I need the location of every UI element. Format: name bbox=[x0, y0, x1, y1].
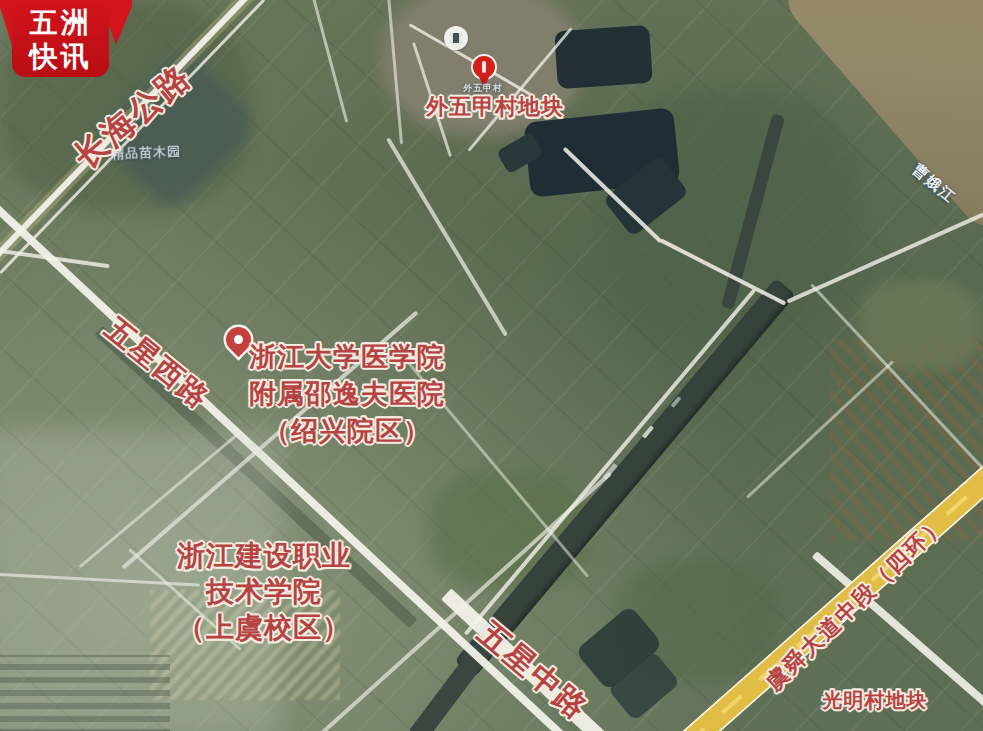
hospital-label-line3: （绍兴院区） bbox=[249, 412, 445, 449]
hospital-label-line1: 浙江大学医学院 bbox=[249, 338, 445, 375]
hospital-label-line2: 附属邵逸夫医院 bbox=[249, 375, 445, 412]
guangming-plot-label: 光明村地块 bbox=[823, 687, 928, 714]
village-plot-label: 外五甲村地块 bbox=[426, 92, 564, 122]
road-wuxing-west-label: 五星西路 bbox=[96, 309, 218, 418]
road-canal-side bbox=[464, 288, 756, 635]
road-minor bbox=[810, 283, 983, 475]
road-minor bbox=[746, 360, 894, 499]
road-minor bbox=[387, 0, 403, 144]
road-minor bbox=[312, 0, 349, 123]
pond-water bbox=[554, 25, 653, 89]
hospital-label: 浙江大学医学院 附属邵逸夫医院 （绍兴院区） bbox=[249, 338, 445, 449]
college-label-line1: 浙江建设职业 bbox=[177, 538, 351, 574]
news-badge-line2: 快讯 bbox=[30, 40, 92, 74]
poi-icon bbox=[444, 26, 468, 50]
news-badge: 五洲 快讯 bbox=[12, 2, 109, 77]
college-label-line3: （上虞校区） bbox=[177, 610, 351, 646]
college-label: 浙江建设职业 技术学院 （上虞校区） bbox=[177, 538, 351, 646]
building-glyph bbox=[450, 33, 462, 43]
news-badge-line1: 五洲 bbox=[30, 6, 92, 40]
college-label-line2: 技术学院 bbox=[177, 574, 351, 610]
terrain-patch bbox=[0, 655, 170, 731]
road-yushun-label: 虞舜大道中段（四环） bbox=[759, 509, 952, 697]
marker-glyph bbox=[482, 61, 486, 73]
road-minor bbox=[386, 137, 508, 336]
satellite-map: 外五甲村 外五甲村地块 精品苗木园 长海公路 五星西路 五星中路 虞舜大道中段（… bbox=[0, 0, 983, 731]
marker-head bbox=[473, 56, 495, 78]
